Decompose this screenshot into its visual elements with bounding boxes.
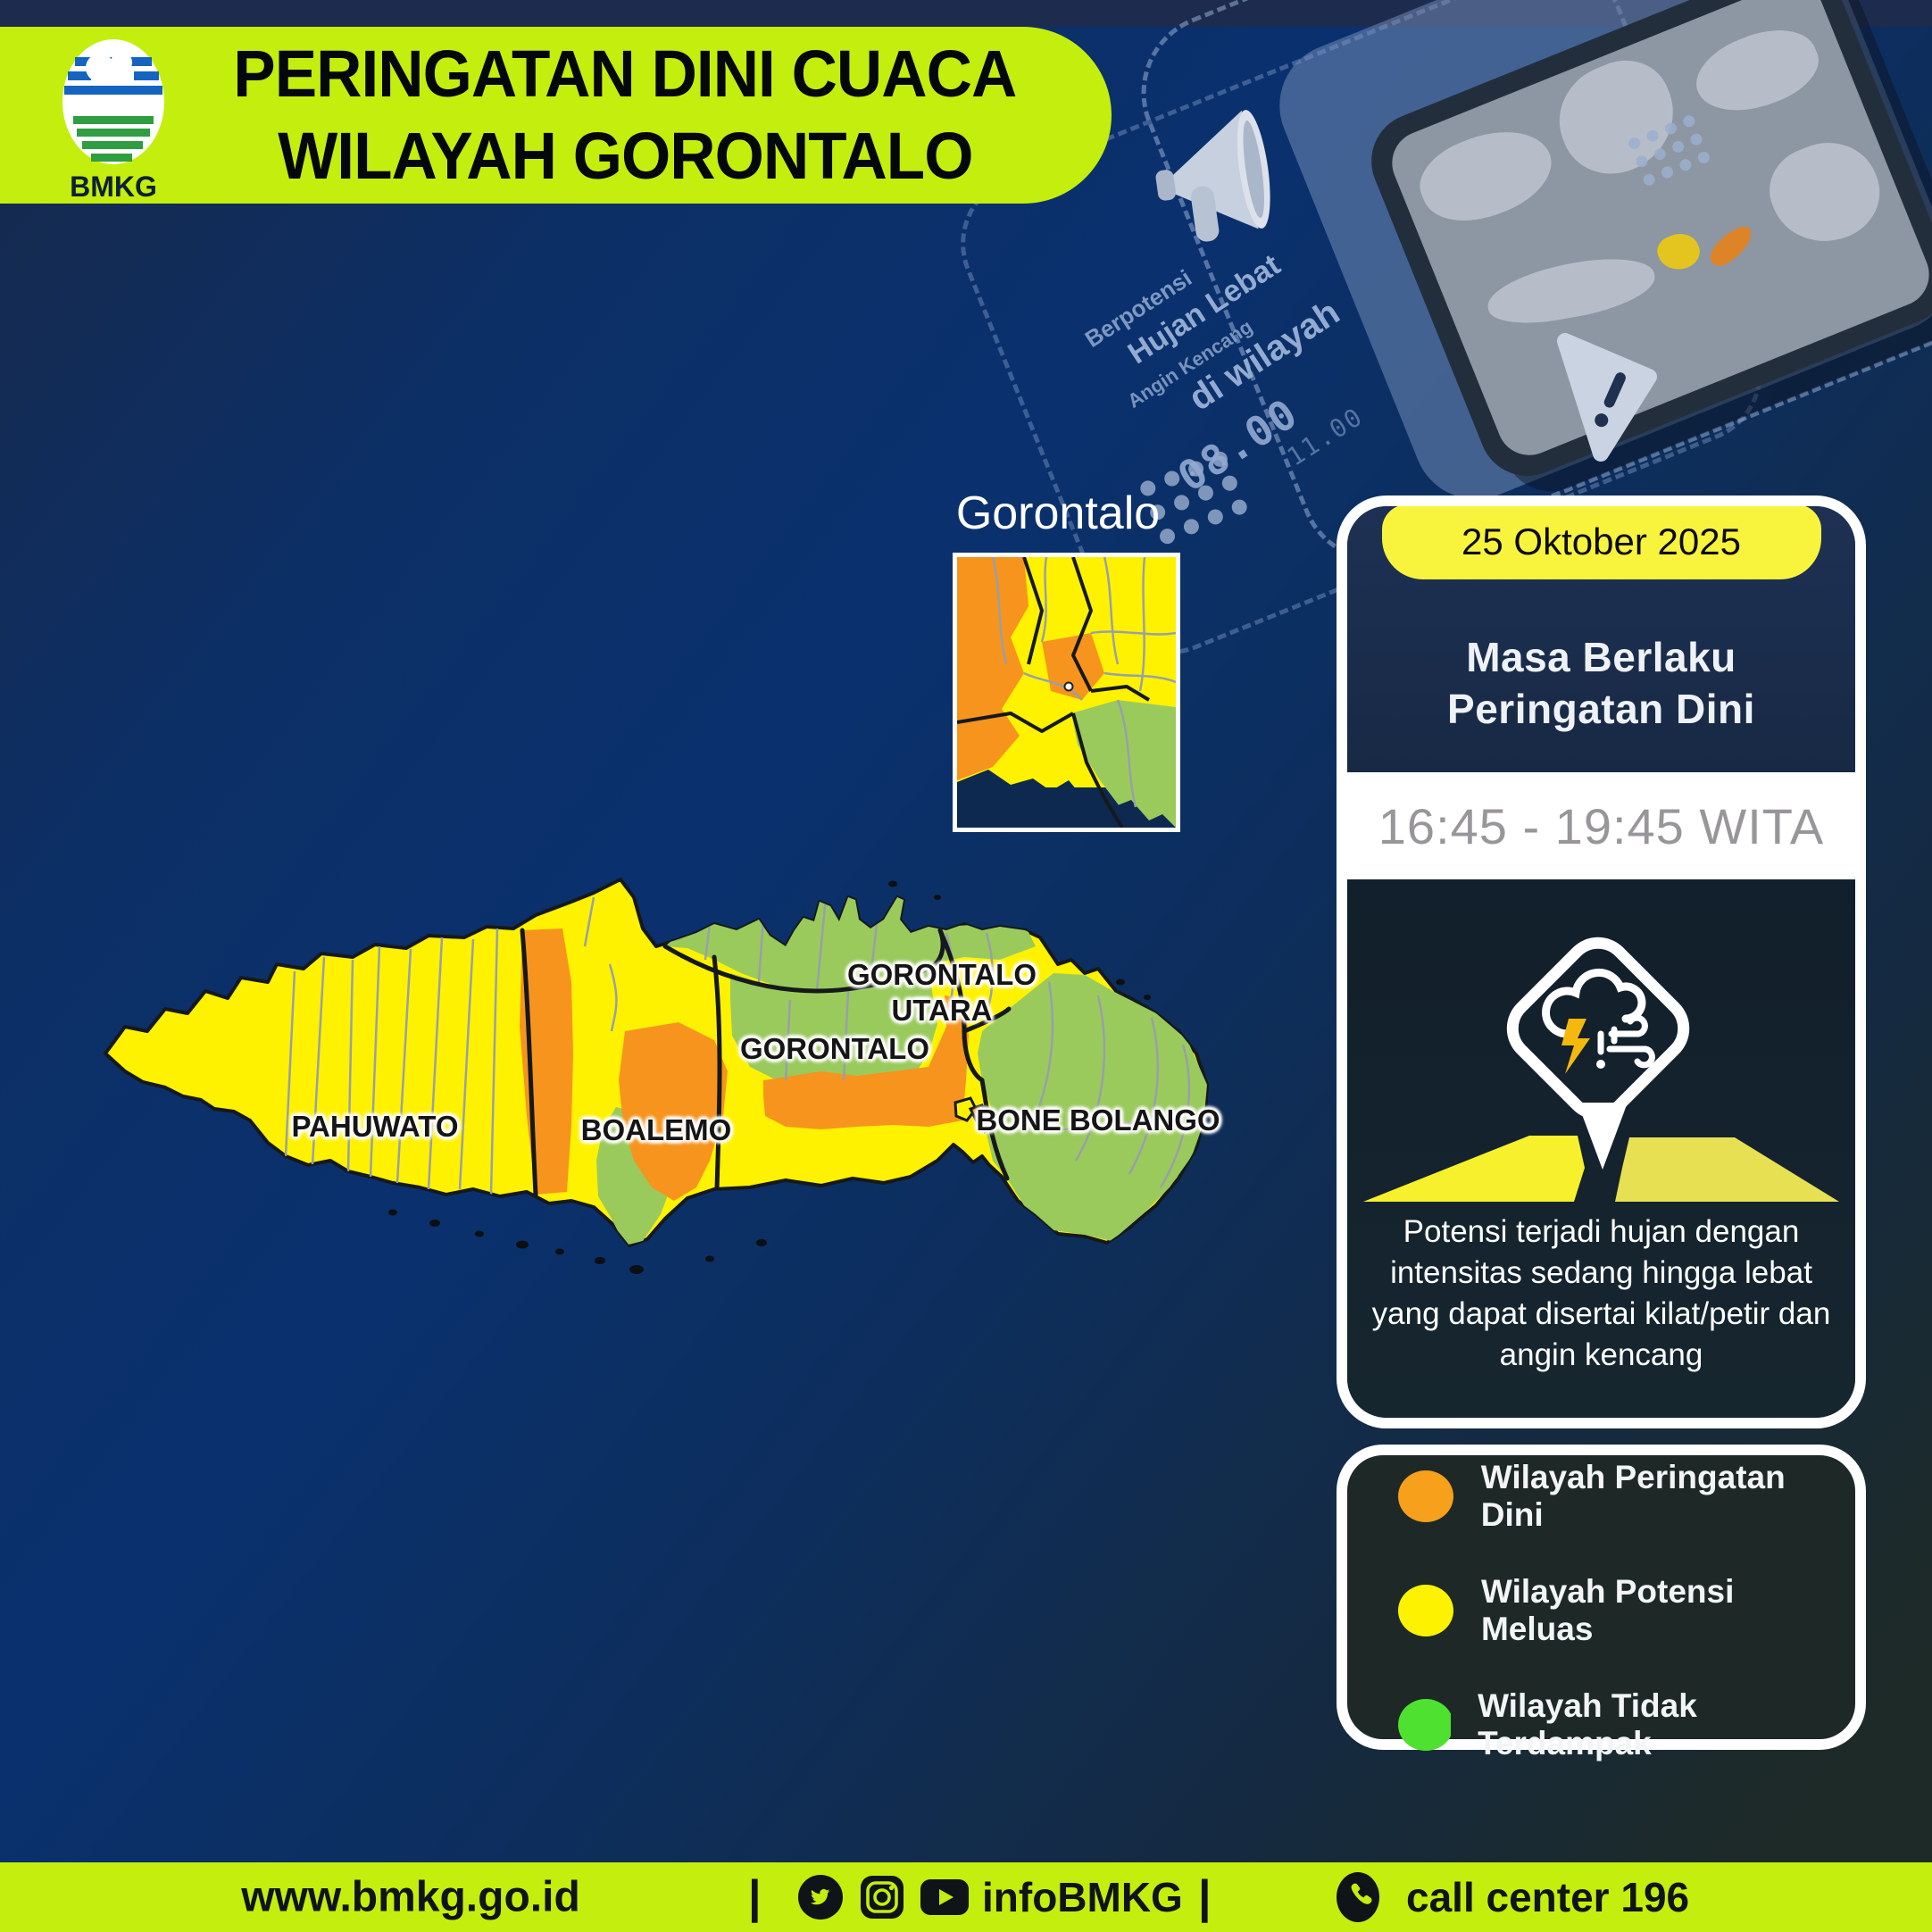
map-blob xyxy=(1757,127,1893,258)
legend-label: Wilayah Potensi Meluas xyxy=(1481,1573,1855,1648)
legend-item-warning: Wilayah Peringatan Dini xyxy=(1397,1459,1855,1534)
map-label-gorontalo: GORONTALO xyxy=(723,1031,946,1067)
logo-text: BMKG xyxy=(70,171,157,203)
warning-cursor-icon xyxy=(1549,321,1665,464)
separator: | xyxy=(748,1870,762,1924)
city-marker xyxy=(1065,683,1073,691)
map-blob xyxy=(1409,113,1563,238)
card-header-section: 25 Oktober 2025 Masa Berlaku Peringatan … xyxy=(1347,506,1855,772)
map-blob xyxy=(1483,249,1660,331)
social-handle: infoBMKG xyxy=(982,1873,1183,1921)
map-label-gorontalo-utara: GORONTALO UTARA xyxy=(835,957,1049,1028)
title-line-1: PERINGATAN DINI CUACA xyxy=(233,33,1016,115)
page-title: PERINGATAN DINI CUACA WILAYAH GORONTALO xyxy=(214,27,1036,204)
storm-weather-icon xyxy=(1522,949,1674,1083)
card-body-section: Potensi terjadi hujan dengan intensitas … xyxy=(1347,879,1855,1418)
date-badge: 25 Oktober 2025 xyxy=(1382,504,1821,579)
validity-line-2: Peringatan Dini xyxy=(1347,683,1855,735)
highlight-yellow xyxy=(1653,228,1705,276)
validity-title: Masa Berlaku Peringatan Dini xyxy=(1347,631,1855,735)
footer-bar: www.bmkg.go.id | infoBMKG | call center … xyxy=(0,1862,1932,1932)
time-range-section: 16:45 - 19:45 WITA xyxy=(1347,772,1855,879)
validity-line-1: Masa Berlaku xyxy=(1347,631,1855,683)
legend-swatch-orange xyxy=(1397,1470,1454,1523)
youtube-icon[interactable] xyxy=(920,1878,970,1917)
website-link[interactable]: www.bmkg.go.id xyxy=(134,1873,687,1922)
warning-description: Potensi terjadi hujan dengan intensitas … xyxy=(1358,1212,1845,1376)
inset-map-title: Gorontalo xyxy=(929,487,1187,540)
legend-swatch-green xyxy=(1397,1698,1451,1752)
separator: | xyxy=(1198,1870,1212,1924)
call-center-icon xyxy=(1332,1871,1384,1923)
legend-card: Wilayah Peringatan Dini Wilayah Potensi … xyxy=(1337,1445,1866,1750)
instagram-icon[interactable] xyxy=(859,1874,905,1920)
infographic-canvas: Berpotensi Hujan Lebat Angin Kencang di … xyxy=(0,0,1932,1932)
inset-map xyxy=(953,553,1180,832)
legend-label: Wilayah Tidak Terdampak xyxy=(1478,1687,1855,1762)
legend-item-unaffected: Wilayah Tidak Terdampak xyxy=(1397,1687,1855,1762)
legend-label: Wilayah Peringatan Dini xyxy=(1481,1459,1855,1534)
warning-info-card: 25 Oktober 2025 Masa Berlaku Peringatan … xyxy=(1337,495,1866,1428)
title-line-2: WILAYAH GORONTALO xyxy=(278,115,972,197)
bmkg-logo: BMKG xyxy=(46,34,180,204)
legend-item-potential: Wilayah Potensi Meluas xyxy=(1397,1573,1855,1648)
twitter-icon[interactable] xyxy=(797,1874,844,1920)
call-center-text: call center 196 xyxy=(1406,1873,1689,1921)
map-label-bone-bolango: BONE BOLANGO xyxy=(964,1103,1232,1138)
map-label-pahuwato: PAHUWATO xyxy=(241,1109,509,1145)
logo-cloud xyxy=(64,52,162,95)
highlight-orange xyxy=(1704,221,1758,271)
map-blob xyxy=(1686,14,1828,128)
province-map xyxy=(85,857,1237,1286)
lightning-bolt xyxy=(1561,1019,1590,1074)
map-label-boalemo: BOALEMO xyxy=(545,1112,768,1148)
header-banner: BMKG PERINGATAN DINI CUACA WILAYAH GORON… xyxy=(0,27,1112,204)
legend-swatch-yellow xyxy=(1397,1584,1454,1637)
